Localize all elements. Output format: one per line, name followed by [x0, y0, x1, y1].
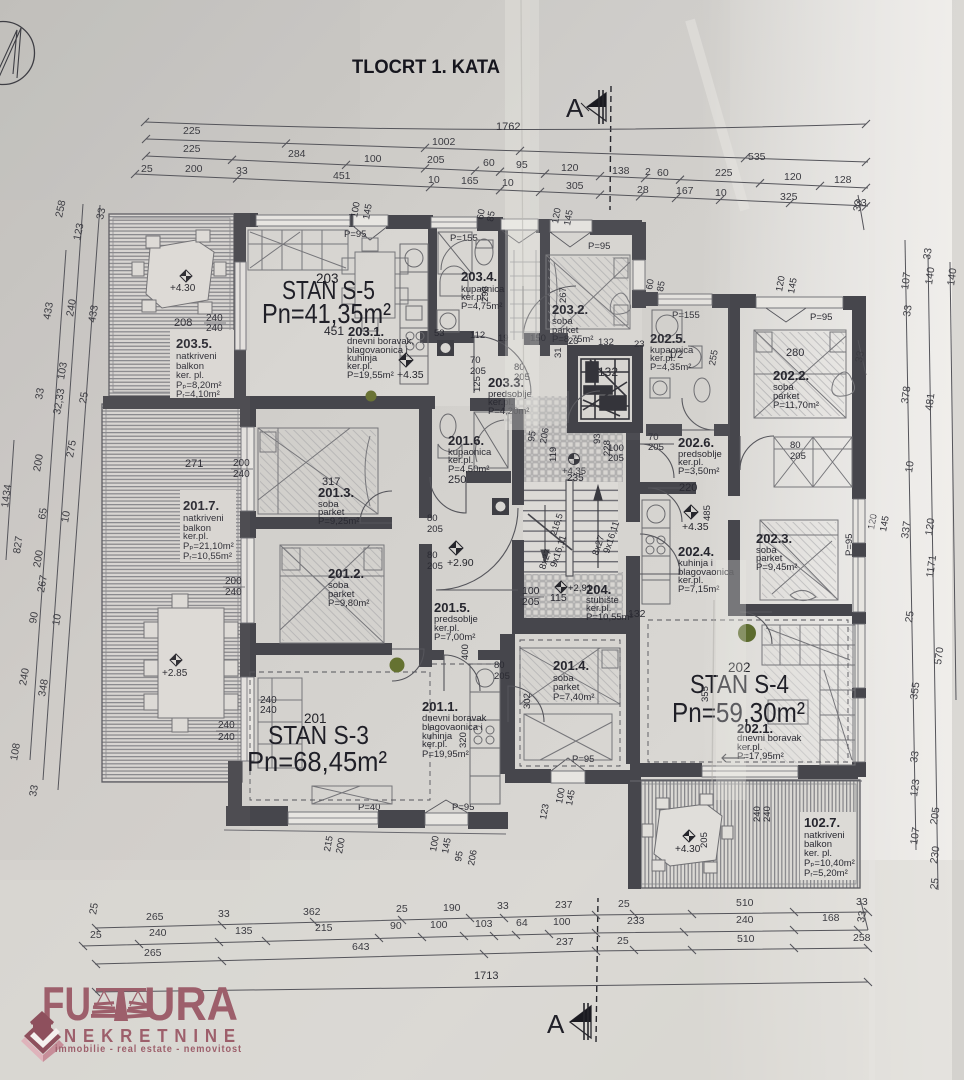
svg-text:102.7.: 102.7. [804, 815, 840, 830]
svg-text:202.3.: 202.3. [756, 531, 792, 546]
svg-text:225: 225 [183, 125, 201, 137]
svg-text:+4.35: +4.35 [397, 369, 424, 381]
svg-text:570: 570 [932, 646, 946, 665]
svg-text:205: 205 [928, 806, 942, 825]
svg-text:140: 140 [945, 267, 959, 286]
svg-text:284: 284 [288, 148, 306, 160]
svg-text:205: 205 [427, 154, 445, 166]
svg-text:P=7,40m²: P=7,40m² [553, 692, 594, 703]
svg-text:10: 10 [50, 613, 64, 627]
svg-text:240: 240 [149, 927, 167, 939]
svg-text:205: 205 [494, 671, 510, 682]
svg-text:P=95: P=95 [844, 534, 855, 556]
svg-text:90: 90 [390, 920, 402, 932]
svg-text:302: 302 [522, 693, 533, 709]
svg-text:2: 2 [645, 166, 651, 178]
svg-text:203.4.: 203.4. [461, 269, 497, 284]
svg-text:URA: URA [144, 977, 238, 1030]
svg-text:1713: 1713 [474, 970, 498, 982]
svg-text:107: 107 [899, 271, 913, 290]
svg-text:28: 28 [637, 184, 649, 196]
svg-text:10: 10 [903, 460, 917, 473]
svg-text:280: 280 [786, 347, 804, 359]
svg-text:400: 400 [460, 644, 471, 660]
svg-text:201.4.: 201.4. [553, 658, 589, 673]
svg-text:P=19,95m²: P=19,95m² [422, 749, 469, 760]
svg-text:325: 325 [780, 191, 798, 203]
svg-text:200: 200 [185, 163, 203, 175]
svg-text:80: 80 [790, 440, 801, 451]
svg-text:125: 125 [472, 376, 483, 392]
svg-text:205: 205 [648, 442, 664, 453]
svg-text:240: 240 [762, 806, 773, 822]
svg-text:168: 168 [822, 912, 840, 924]
svg-text:25: 25 [141, 163, 153, 175]
svg-text:190: 190 [443, 902, 461, 914]
svg-text:225: 225 [715, 167, 733, 179]
svg-text:33: 33 [218, 908, 230, 920]
svg-text:240: 240 [736, 914, 754, 926]
svg-text:P=10,55m²: P=10,55m² [586, 612, 633, 623]
svg-text:25: 25 [90, 929, 102, 941]
svg-text:100: 100 [364, 153, 382, 165]
svg-text:33: 33 [236, 165, 248, 177]
svg-text:167: 167 [676, 185, 694, 197]
svg-text:95: 95 [516, 159, 528, 171]
svg-text:P=3,50m²: P=3,50m² [678, 466, 719, 477]
svg-text:immobilie - real estate - nemo: immobilie - real estate - nemovitost [55, 1044, 242, 1055]
svg-text:P=9,25m²: P=9,25m² [318, 516, 359, 527]
svg-text:237: 237 [556, 936, 574, 948]
svg-text:205: 205 [522, 596, 540, 608]
svg-text:220: 220 [679, 482, 697, 494]
svg-text:140: 140 [923, 266, 937, 285]
svg-text:165: 165 [461, 175, 479, 187]
svg-text:A: A [566, 93, 584, 123]
svg-text:225: 225 [183, 143, 201, 155]
svg-text:60: 60 [657, 167, 669, 179]
svg-text:237: 237 [555, 899, 573, 911]
svg-text:201.2.: 201.2. [328, 566, 364, 581]
svg-text:+4,35: +4,35 [562, 466, 586, 477]
svg-text:80: 80 [427, 550, 438, 561]
svg-text:205: 205 [427, 524, 443, 535]
svg-text:100: 100 [430, 919, 448, 931]
svg-text:202.4.: 202.4. [678, 544, 714, 559]
svg-text:205: 205 [470, 366, 486, 377]
svg-text:201.1.: 201.1. [422, 699, 458, 714]
svg-text:33: 33 [908, 750, 922, 763]
svg-text:P=19,55m²: P=19,55m² [347, 370, 394, 381]
svg-text:228: 228 [602, 440, 613, 456]
svg-text:378: 378 [899, 385, 913, 404]
svg-text:201.6.: 201.6. [448, 433, 484, 448]
svg-text:827: 827 [11, 535, 25, 554]
svg-text:25: 25 [396, 903, 408, 915]
svg-text:33: 33 [851, 199, 865, 213]
svg-text:+2,91: +2,91 [568, 583, 592, 594]
svg-text:112: 112 [470, 330, 485, 341]
svg-text:201.5.: 201.5. [434, 600, 470, 615]
svg-text:337: 337 [899, 520, 913, 539]
svg-text:Pn=68,45m²: Pn=68,45m² [247, 746, 387, 777]
svg-text:+4.30: +4.30 [675, 844, 701, 855]
svg-text:510: 510 [736, 897, 754, 909]
svg-text:205: 205 [699, 832, 710, 848]
svg-text:250: 250 [448, 474, 466, 486]
svg-text:119: 119 [548, 447, 559, 462]
svg-text:P=11,70m²: P=11,70m² [773, 400, 819, 411]
svg-text:33: 33 [855, 910, 869, 924]
svg-text:Pᵣ=5,20m²: Pᵣ=5,20m² [804, 868, 848, 879]
svg-text:25: 25 [617, 935, 629, 947]
svg-text:+2.90: +2.90 [447, 557, 474, 569]
svg-text:P=9,45m²: P=9,45m² [756, 562, 797, 573]
svg-text:205: 205 [790, 451, 806, 462]
svg-text:138: 138 [612, 165, 630, 177]
svg-text:33: 33 [921, 247, 935, 260]
svg-text:25: 25 [903, 610, 917, 623]
svg-text:70: 70 [470, 355, 481, 366]
svg-text:120: 120 [923, 517, 937, 536]
svg-text:33: 33 [901, 304, 915, 317]
svg-text:33: 33 [853, 350, 867, 364]
svg-text:A: A [547, 1009, 565, 1039]
svg-text:P=7,15m²: P=7,15m² [678, 584, 719, 595]
svg-text:95: 95 [453, 850, 466, 862]
svg-text:P=95: P=95 [810, 312, 832, 323]
svg-text:53: 53 [434, 328, 445, 339]
svg-text:TLOCRT 1. KATA: TLOCRT 1. KATA [352, 56, 500, 78]
svg-text:355: 355 [908, 681, 922, 700]
svg-text:P=155: P=155 [450, 233, 478, 244]
svg-text:25: 25 [928, 877, 942, 890]
svg-text:100: 100 [553, 916, 571, 928]
svg-text:64: 64 [516, 917, 528, 929]
svg-text:25: 25 [618, 898, 630, 910]
svg-text:25: 25 [77, 391, 91, 405]
svg-text:107: 107 [908, 826, 922, 845]
svg-text:355: 355 [700, 686, 711, 702]
svg-text:10: 10 [502, 177, 514, 189]
svg-text:258: 258 [853, 932, 871, 944]
svg-text:481: 481 [923, 392, 937, 411]
svg-text:305: 305 [566, 180, 584, 192]
svg-text:10: 10 [428, 174, 440, 186]
svg-text:85: 85 [485, 210, 498, 222]
svg-text:240: 240 [260, 705, 277, 716]
svg-text:+4.35: +4.35 [682, 521, 709, 533]
svg-text:265: 265 [144, 947, 162, 959]
svg-text:P=9,80m²: P=9,80m² [328, 598, 369, 609]
svg-text:1002: 1002 [432, 136, 456, 148]
svg-text:33: 33 [33, 387, 47, 401]
svg-text:33: 33 [497, 900, 509, 912]
svg-text:362: 362 [303, 906, 321, 918]
svg-text:1762: 1762 [496, 121, 520, 133]
svg-text:201.3.: 201.3. [318, 485, 354, 500]
svg-text:230: 230 [928, 845, 942, 864]
svg-text:265: 265 [146, 911, 164, 923]
svg-text:10: 10 [715, 187, 727, 199]
svg-text:233: 233 [627, 915, 645, 927]
svg-text:451: 451 [324, 324, 344, 338]
svg-text:123: 123 [908, 778, 922, 797]
svg-text:120: 120 [561, 162, 579, 174]
svg-text:320: 320 [458, 732, 469, 748]
svg-text:25: 25 [87, 902, 101, 916]
svg-text:10: 10 [59, 510, 73, 524]
svg-text:NEKRETNINE: NEKRETNINE [64, 1025, 242, 1046]
svg-text:451: 451 [333, 170, 351, 182]
svg-text:103: 103 [475, 918, 493, 930]
svg-text:215: 215 [315, 922, 333, 934]
svg-text:33: 33 [27, 784, 41, 798]
svg-text:202.2.: 202.2. [773, 368, 809, 383]
svg-text:120: 120 [784, 171, 802, 183]
svg-text:485: 485 [702, 505, 713, 521]
svg-text:510: 510 [737, 933, 755, 945]
svg-text:535: 535 [748, 151, 766, 163]
svg-text:128: 128 [834, 174, 852, 186]
svg-text:60: 60 [483, 157, 495, 169]
svg-text:P=7,00m²: P=7,00m² [434, 632, 475, 643]
svg-text:80: 80 [427, 513, 438, 524]
svg-text:298: 298 [480, 286, 491, 302]
svg-text:115: 115 [550, 592, 567, 604]
svg-text:643: 643 [352, 941, 370, 953]
svg-text:205: 205 [427, 561, 443, 572]
svg-text:65: 65 [36, 507, 50, 521]
svg-text:90: 90 [27, 611, 41, 625]
svg-text:80: 80 [494, 660, 505, 671]
svg-text:135: 135 [235, 925, 253, 937]
